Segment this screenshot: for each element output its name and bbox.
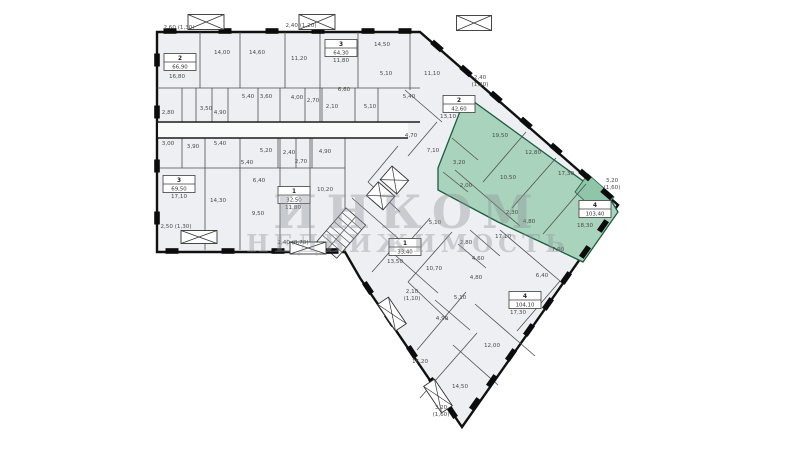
area-label: 3,50 bbox=[200, 106, 213, 112]
apartment-total-area: 42,60 bbox=[451, 106, 467, 112]
area-label: 3,00 bbox=[162, 141, 175, 147]
wall-pier bbox=[399, 28, 412, 34]
area-label: 14,60 bbox=[249, 50, 265, 56]
area-label: 6,40 bbox=[536, 273, 549, 279]
area-label: 13,50 bbox=[387, 259, 403, 265]
area-label: 2,10 bbox=[406, 289, 419, 295]
area-label: (1,60) bbox=[604, 185, 621, 191]
area-label: 19,50 bbox=[492, 133, 508, 139]
area-label: 5,40 bbox=[214, 141, 227, 147]
apartment-number-box: 369,50 bbox=[163, 176, 195, 193]
area-label: 2,40 bbox=[474, 75, 487, 81]
apartment-number: 2 bbox=[457, 98, 461, 104]
area-label: 17,10 bbox=[171, 194, 187, 200]
apartment-total-area: 64,30 bbox=[333, 50, 349, 56]
area-label: 2,70 bbox=[295, 159, 308, 165]
area-label: 11,10 bbox=[424, 71, 440, 77]
area-label: 9,50 bbox=[252, 211, 265, 217]
apartment-number-box: 4104,10 bbox=[509, 292, 541, 309]
wall-pier bbox=[154, 54, 160, 67]
area-label: 14,00 bbox=[214, 50, 230, 56]
area-label: 14,50 bbox=[452, 384, 468, 390]
area-label: 3,20 bbox=[453, 160, 466, 166]
watermark: ИНКОМ НЕДВИЖИМОСТЬ bbox=[246, 185, 570, 258]
area-label: 2,80 bbox=[162, 110, 175, 116]
area-label: 2,60 (1,30) bbox=[163, 25, 194, 31]
apartment-number-box: 364,30 bbox=[325, 40, 357, 57]
wall-pier bbox=[154, 212, 160, 225]
area-label: 2,40 bbox=[283, 150, 296, 156]
area-label: 4,70 bbox=[405, 133, 418, 139]
apartment-number-box: 266,90 bbox=[164, 54, 196, 71]
area-label: 11,80 bbox=[333, 58, 349, 64]
area-label: 11,20 bbox=[291, 56, 307, 62]
wall-pier bbox=[166, 248, 179, 254]
watermark-line2: НЕДВИЖИМОСТЬ bbox=[246, 229, 570, 258]
apartment-number-box: 242,60 bbox=[443, 96, 475, 113]
apartment-total-area: 104,10 bbox=[516, 302, 535, 308]
balcony-x-mark bbox=[181, 231, 217, 244]
balcony-x-mark bbox=[457, 16, 492, 31]
apartment-total-area: 69,50 bbox=[171, 186, 187, 192]
area-label: 6,40 bbox=[253, 178, 266, 184]
area-label: (1,60) bbox=[433, 412, 450, 418]
area-label: 10,50 bbox=[500, 175, 516, 181]
area-label: 13,10 bbox=[440, 114, 456, 120]
area-label: 2,10 bbox=[326, 104, 339, 110]
wall-pier bbox=[266, 28, 279, 34]
apartment-number: 3 bbox=[177, 178, 181, 184]
area-label: 16,20 bbox=[412, 359, 428, 365]
area-label: 4,90 bbox=[319, 149, 332, 155]
area-label: 3,20 bbox=[606, 178, 619, 184]
area-label: 3,20 bbox=[435, 405, 448, 411]
area-label: 7,10 bbox=[427, 148, 440, 154]
area-label: 5,10 bbox=[454, 295, 467, 301]
area-label: 5,40 bbox=[403, 94, 416, 100]
area-label: 3,60 bbox=[260, 94, 273, 100]
apartment-number-box: 4103,40 bbox=[579, 201, 611, 218]
area-label: 17,30 bbox=[510, 310, 526, 316]
apartment-number: 2 bbox=[178, 56, 182, 62]
area-label: 2,50 (1,30) bbox=[160, 224, 191, 230]
apartment-total-area: 103,40 bbox=[586, 211, 605, 217]
apartment-number: 3 bbox=[339, 42, 343, 48]
area-label: 16,80 bbox=[169, 74, 185, 80]
wall-pier bbox=[154, 160, 160, 173]
area-label: 14,50 bbox=[374, 42, 390, 48]
area-label: 18,30 bbox=[577, 223, 593, 229]
area-label: 5,40 bbox=[241, 160, 254, 166]
wall-pier bbox=[154, 106, 160, 119]
apartment-number: 4 bbox=[523, 294, 527, 300]
area-label: 2,40 (1,20) bbox=[285, 23, 316, 29]
floor-plan: 2,60 (1,30)2,40 (1,20)16,8014,0014,6011,… bbox=[0, 0, 800, 450]
area-label: 12,80 bbox=[525, 150, 541, 156]
area-label: 5,40 bbox=[242, 94, 255, 100]
corridor bbox=[158, 123, 408, 137]
area-label: 6,60 bbox=[338, 87, 351, 93]
apartment-number: 4 bbox=[593, 203, 597, 209]
area-label: 17,30 bbox=[558, 171, 574, 177]
area-label: (1,20) bbox=[472, 82, 489, 88]
apartment-total-area: 66,90 bbox=[172, 64, 188, 70]
wall-pier bbox=[222, 248, 235, 254]
area-label: 3,90 bbox=[187, 144, 200, 150]
area-label: 4,90 bbox=[214, 110, 227, 116]
area-label: 4,90 bbox=[436, 316, 449, 322]
area-label: (1,10) bbox=[404, 296, 421, 302]
area-label: 4,00 bbox=[291, 95, 304, 101]
area-label: 4,80 bbox=[470, 275, 483, 281]
wall-pier bbox=[362, 28, 375, 34]
area-label: 12,00 bbox=[484, 343, 500, 349]
area-label: 10,70 bbox=[426, 266, 442, 272]
area-label: 5,10 bbox=[364, 104, 377, 110]
area-label: 5,20 bbox=[260, 148, 273, 154]
area-label: 5,10 bbox=[380, 71, 393, 77]
area-label: 2,70 bbox=[307, 98, 320, 104]
area-label: 14,30 bbox=[210, 198, 226, 204]
floor-plan-viewer: 2,60 (1,30)2,40 (1,20)16,8014,0014,6011,… bbox=[0, 0, 800, 450]
